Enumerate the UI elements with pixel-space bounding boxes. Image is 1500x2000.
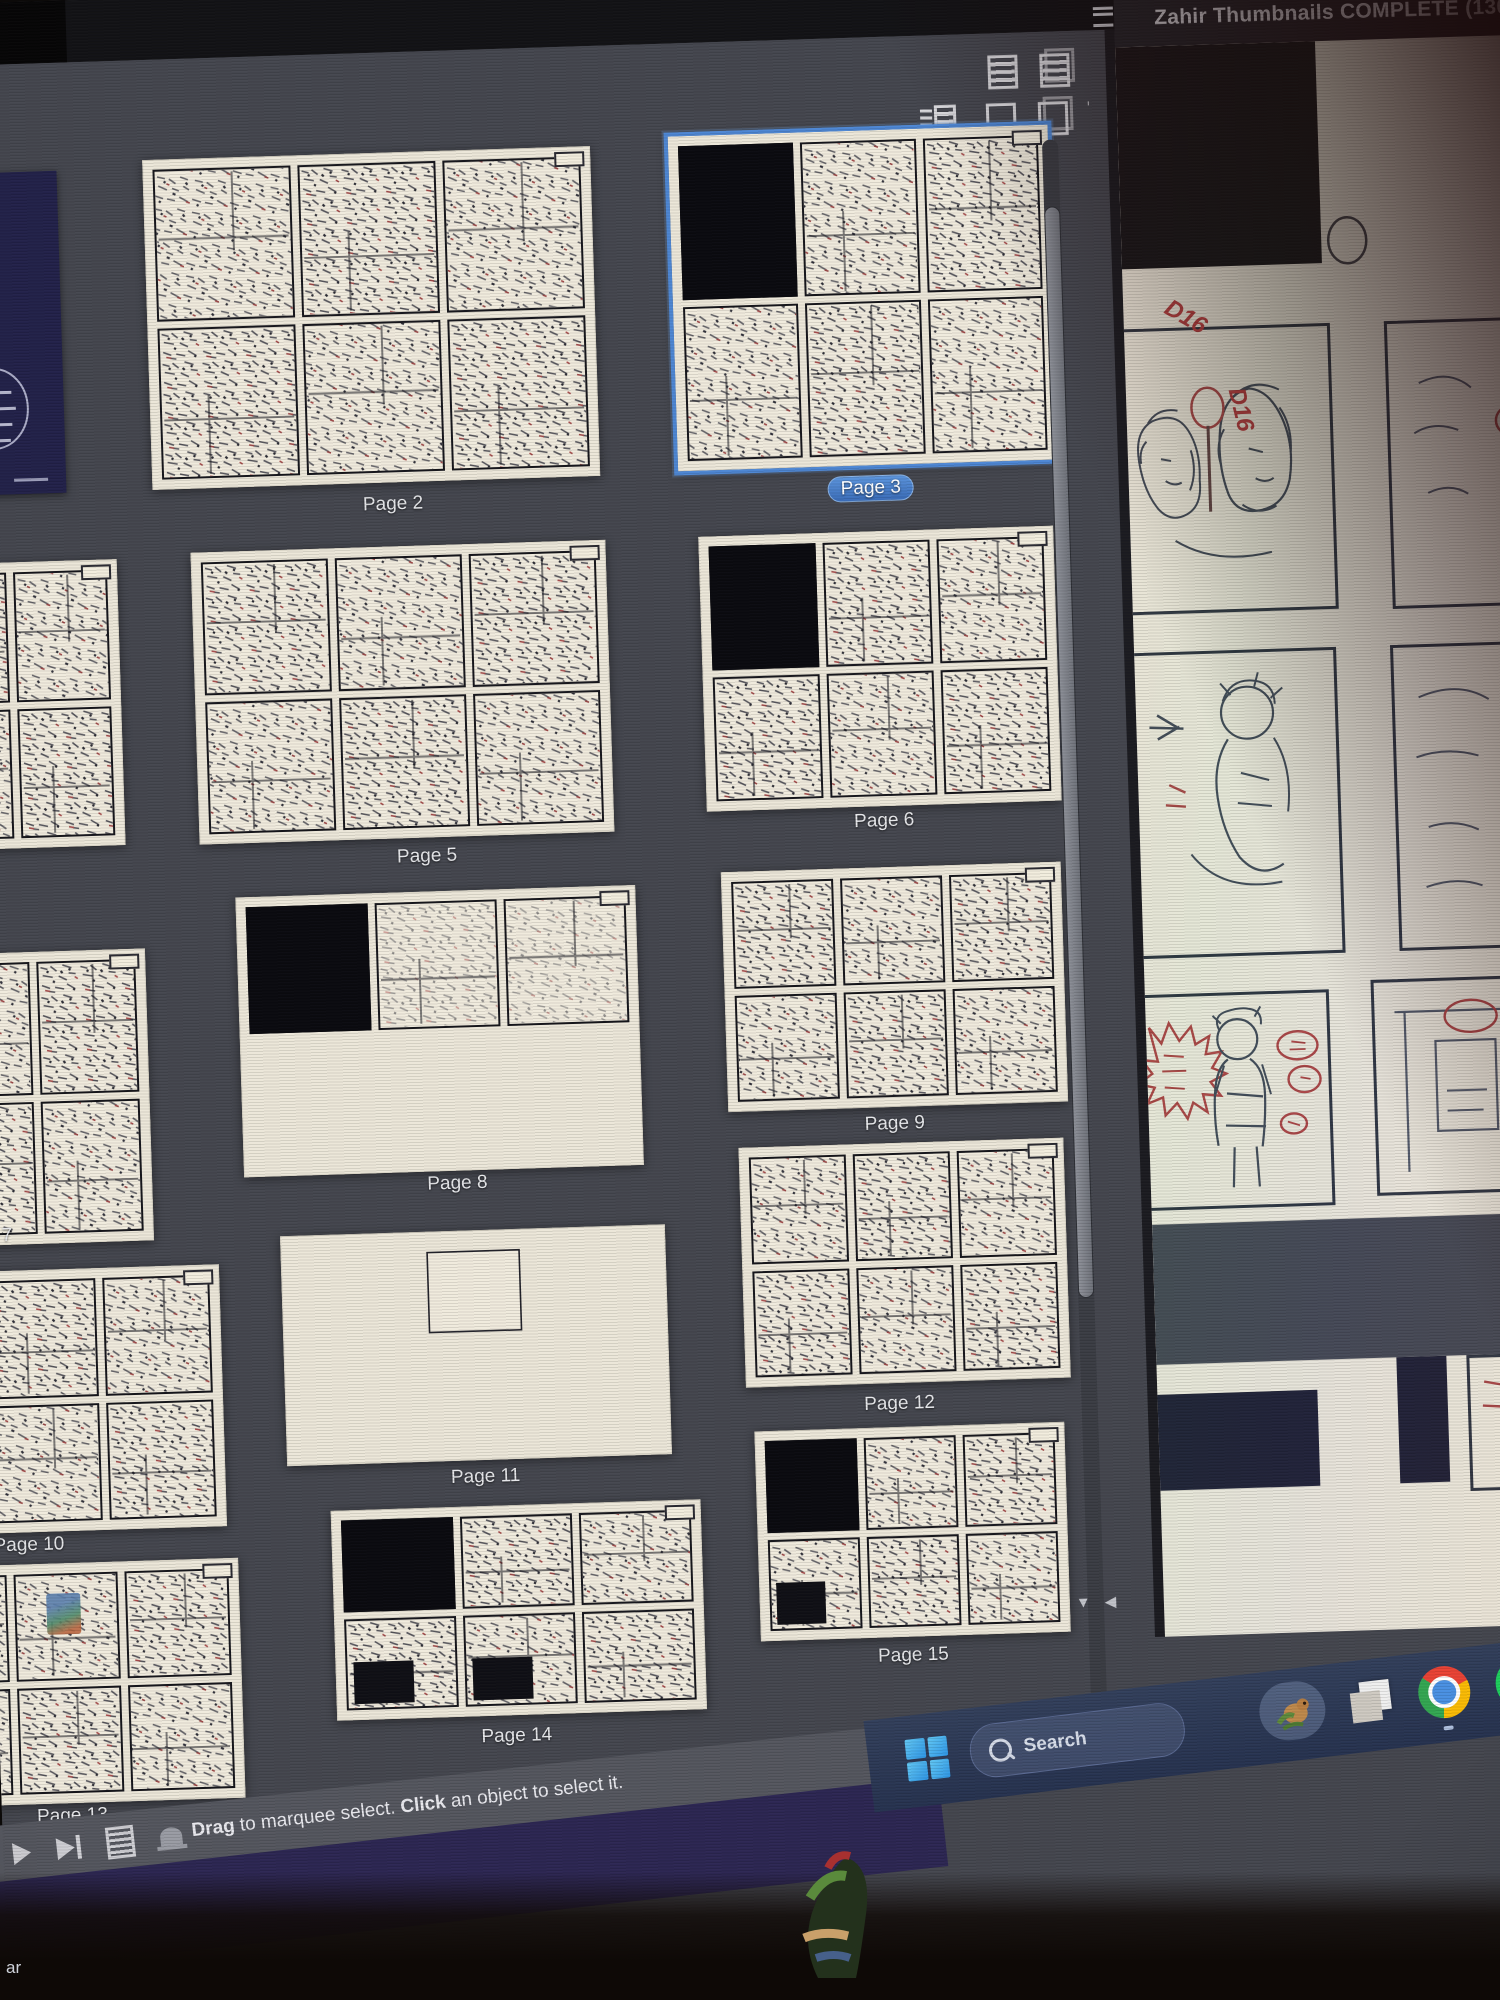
mini-page xyxy=(0,1403,102,1524)
page-label: Page 10 xyxy=(0,1533,65,1557)
mini-page xyxy=(341,1517,456,1612)
page-label: Page 8 xyxy=(427,1172,488,1196)
mini-page xyxy=(749,1154,849,1263)
sketch-panel-partial xyxy=(1466,1351,1500,1491)
mini-page xyxy=(800,139,920,297)
mini-page xyxy=(124,1568,231,1678)
skip-end-icon[interactable] xyxy=(56,1835,83,1862)
mini-page xyxy=(960,1261,1060,1370)
mini-page xyxy=(473,689,604,825)
page-label: Page 11 xyxy=(451,1465,521,1489)
mini-page xyxy=(294,1351,414,1456)
sheet-stamp xyxy=(1027,1143,1057,1159)
page-label: Page 12 xyxy=(864,1392,935,1416)
mini-page xyxy=(805,300,925,458)
mini-page xyxy=(508,1029,634,1159)
mini-page xyxy=(0,962,33,1098)
mini-page xyxy=(13,1572,120,1682)
page-label: Page 2 xyxy=(363,492,424,516)
page-thumbnail[interactable] xyxy=(280,1224,672,1466)
desk-foreground xyxy=(0,1872,1500,2000)
mini-page xyxy=(201,558,332,694)
mini-page xyxy=(0,1278,99,1399)
mini-page xyxy=(582,1608,697,1703)
page-thumbnail[interactable] xyxy=(668,125,1058,472)
bell-icon[interactable] xyxy=(159,1826,183,1846)
page-thumbnail[interactable] xyxy=(0,948,154,1250)
sheet-stamp xyxy=(202,1563,232,1579)
mini-page xyxy=(13,569,111,701)
mini-page xyxy=(442,156,585,312)
mini-page xyxy=(678,143,798,301)
page-thumbnail[interactable] xyxy=(0,559,126,855)
desk-toy xyxy=(758,1828,898,2000)
mini-page xyxy=(0,1575,10,1685)
start-button[interactable] xyxy=(904,1736,950,1782)
mini-page xyxy=(840,875,945,985)
mini-page xyxy=(683,304,803,462)
page-label: Page 6 xyxy=(854,809,915,833)
mini-page xyxy=(302,319,445,475)
page-thumbnail[interactable] xyxy=(0,1264,227,1537)
page-label: Page 5 xyxy=(397,845,458,869)
mini-page xyxy=(936,536,1047,663)
spotify-icon[interactable] xyxy=(1493,1654,1500,1712)
mini-page xyxy=(856,1265,956,1374)
page-label: Page 9 xyxy=(864,1112,925,1136)
sheet-stamp xyxy=(1017,531,1047,547)
document-title: Zahir Thumbnails COMPLETE (130 xyxy=(1154,0,1500,30)
page-thumbnail-panel: e 7Page 10Page 13Page 2Page 5Page 8Page … xyxy=(0,30,1142,1825)
mini-page xyxy=(157,324,300,480)
mini-page xyxy=(542,1343,662,1448)
sheet-stamp xyxy=(554,151,584,167)
spread-info-view-icon[interactable] xyxy=(1039,53,1070,88)
mini-page xyxy=(106,1399,217,1520)
mini-page xyxy=(953,985,1058,1095)
mini-page xyxy=(379,1033,505,1163)
mini-page xyxy=(335,554,466,690)
mini-page xyxy=(344,1615,459,1710)
mini-page xyxy=(864,1435,959,1529)
app-window-icon[interactable] xyxy=(1349,1679,1396,1724)
mini-page xyxy=(102,1275,213,1396)
mini-page xyxy=(853,1151,953,1260)
mini-page xyxy=(957,1148,1057,1257)
search-icon xyxy=(988,1737,1014,1763)
blacked-panel xyxy=(1396,1356,1450,1484)
page-thumbnail[interactable] xyxy=(738,1138,1070,1388)
circle-sketch xyxy=(1318,211,1376,269)
blacked-panel xyxy=(1115,41,1322,269)
sheet-stamp xyxy=(1025,867,1055,883)
mini-page xyxy=(152,165,295,321)
page-label: e 7 xyxy=(0,1225,13,1248)
page-label: Page 14 xyxy=(481,1724,552,1748)
mini-page xyxy=(538,1235,658,1340)
sheet-stamp xyxy=(569,545,599,561)
mini-page xyxy=(17,1685,124,1795)
mini-page xyxy=(205,698,336,834)
mini-page xyxy=(0,709,14,841)
mini-page xyxy=(822,540,933,667)
mini-page xyxy=(447,315,590,471)
mini-page xyxy=(460,1513,575,1608)
play-icon[interactable] xyxy=(12,1841,32,1865)
mini-page xyxy=(339,694,470,830)
mini-page xyxy=(713,674,824,801)
mini-page xyxy=(731,879,836,989)
monitor-screen: Zahir Thumbnails COMPLETE (130 e 7Page 1… xyxy=(0,0,1500,2000)
sheet-stamp xyxy=(81,564,111,580)
mini-page xyxy=(0,573,10,705)
mini-page xyxy=(966,1531,1061,1625)
mini-page xyxy=(375,899,501,1029)
mini-page xyxy=(735,992,840,1102)
mini-page xyxy=(426,1249,522,1333)
mini-page xyxy=(290,1242,410,1347)
mini-page xyxy=(36,959,139,1095)
bezel-corner xyxy=(0,0,67,66)
mini-page xyxy=(250,1037,376,1167)
pasteboard-gap xyxy=(1152,1212,1500,1365)
page-thumbnail[interactable] xyxy=(235,885,644,1177)
sketch-panel-figures xyxy=(1122,647,1346,960)
mini-page xyxy=(17,706,115,838)
page-thumbnail[interactable] xyxy=(721,862,1068,1113)
mini-page xyxy=(246,903,372,1033)
mini-page xyxy=(297,161,440,317)
stray-desktop-text: ar xyxy=(6,1958,21,1978)
mini-page xyxy=(768,1537,863,1631)
mini-page xyxy=(709,543,820,670)
page-thumbnail[interactable] xyxy=(190,540,614,845)
sheet-stamp xyxy=(1028,1427,1058,1443)
mini-page xyxy=(949,872,1054,982)
chrome-icon[interactable] xyxy=(1415,1663,1473,1721)
page-info-view-icon[interactable] xyxy=(987,55,1018,90)
mini-page xyxy=(463,1612,578,1707)
sketch-panel-partial xyxy=(1384,315,1500,609)
pet-icon[interactable] xyxy=(1256,1678,1329,1744)
mini-page xyxy=(128,1682,235,1792)
mini-page xyxy=(867,1534,962,1628)
mini-page xyxy=(504,895,630,1025)
mini-page xyxy=(0,1689,13,1799)
page-label: Page 3 xyxy=(827,474,914,503)
mini-page xyxy=(827,671,938,798)
page-thumbnail[interactable] xyxy=(142,146,600,490)
mini-page xyxy=(418,1347,538,1452)
mini-page xyxy=(844,989,949,1099)
cover-page-thumbnail[interactable] xyxy=(0,171,67,496)
sheet-stamp xyxy=(1012,130,1042,146)
page-thumbnail[interactable] xyxy=(698,526,1061,812)
mini-page xyxy=(922,135,1042,293)
sketch-panel-interior xyxy=(1370,974,1500,1196)
search-label: Search xyxy=(1022,1728,1088,1758)
sketch-panel-faces xyxy=(1115,323,1339,616)
page-thumbnail[interactable] xyxy=(754,1422,1070,1642)
mini-page xyxy=(0,1101,37,1237)
page-thumbnail[interactable] xyxy=(0,1558,246,1809)
mini-page xyxy=(963,1432,1058,1526)
mini-page xyxy=(579,1510,694,1605)
mini-page xyxy=(765,1438,860,1532)
sheet-stamp xyxy=(599,890,629,906)
notes-icon[interactable] xyxy=(105,1825,136,1860)
photo-of-monitor: Zahir Thumbnails COMPLETE (130 e 7Page 1… xyxy=(0,0,1500,2000)
sheet-stamp xyxy=(183,1269,213,1285)
mini-page xyxy=(469,550,600,686)
mini-page xyxy=(40,1098,143,1234)
scroll-arrows[interactable]: ▼◀ xyxy=(1076,1592,1131,1612)
search-input[interactable]: Search xyxy=(967,1700,1188,1780)
sheet-stamp xyxy=(665,1504,695,1520)
sketch-panel-partial xyxy=(1390,639,1500,951)
page-label: Page 15 xyxy=(878,1644,949,1668)
page-thumbnail[interactable] xyxy=(331,1499,707,1721)
mini-page xyxy=(928,296,1048,454)
mini-page xyxy=(941,667,1052,794)
document-canvas[interactable]: D16 D16 xyxy=(1115,35,1500,1637)
mini-page xyxy=(752,1268,852,1377)
sheet-stamp xyxy=(109,954,139,970)
